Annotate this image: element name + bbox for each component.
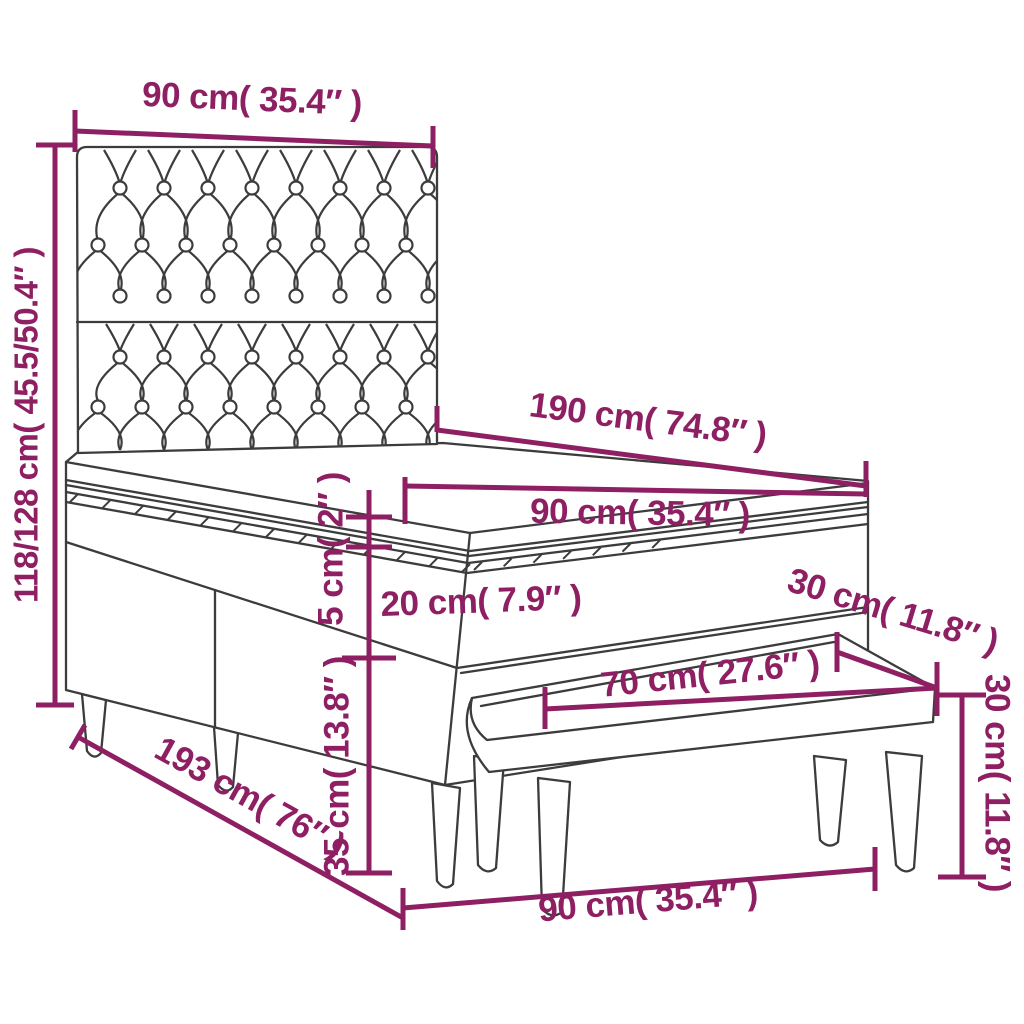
bed-leg-foot [432, 783, 460, 887]
headboard [74, 147, 473, 453]
dimension-label: 30 cm( 11.8″ ) [978, 674, 1017, 892]
dimension-label: 90 cm( 35.4″ ) [537, 873, 759, 930]
dimension-label: 5 cm( 2″ ) [312, 472, 351, 626]
bench-leg-back-left [474, 756, 504, 871]
dimension-label: 118/128 cm( 45.5/50.4″ ) [8, 247, 45, 603]
dimension-label: 90 cm( 35.4″ ) [530, 492, 751, 535]
dimension-label: 90 cm( 35.4″ ) [141, 75, 362, 123]
dim-bench-height: 30 cm( 11.8″ ) [938, 674, 1017, 892]
bench-leg-front-right [886, 752, 922, 871]
dim-overall-height: 118/128 cm( 45.5/50.4″ ) [8, 145, 75, 705]
dimension-diagram: 90 cm( 35.4″ ) 118/128 cm( 45.5/50.4″ ) … [0, 0, 1024, 1024]
diagram-canvas: 90 cm( 35.4″ ) 118/128 cm( 45.5/50.4″ ) … [0, 0, 1024, 1024]
dim-bench-span-width: 90 cm( 35.4″ ) [403, 847, 875, 930]
bench-leg-back-right [814, 756, 846, 846]
dimension-label: 20 cm( 7.9″ ) [380, 578, 582, 624]
